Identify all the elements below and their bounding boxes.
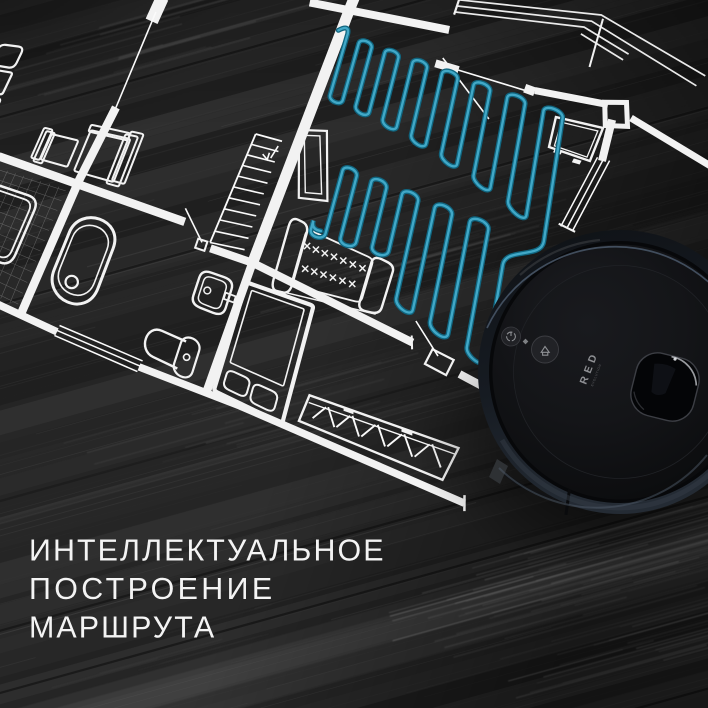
svg-text:ИНТЕЛЛЕКТУАЛЬНОЕ: ИНТЕЛЛЕКТУАЛЬНОЕ <box>29 534 386 568</box>
svg-text:МАРШРУТА: МАРШРУТА <box>29 611 216 645</box>
svg-text:ПОСТРОЕНИЕ: ПОСТРОЕНИЕ <box>29 572 276 606</box>
